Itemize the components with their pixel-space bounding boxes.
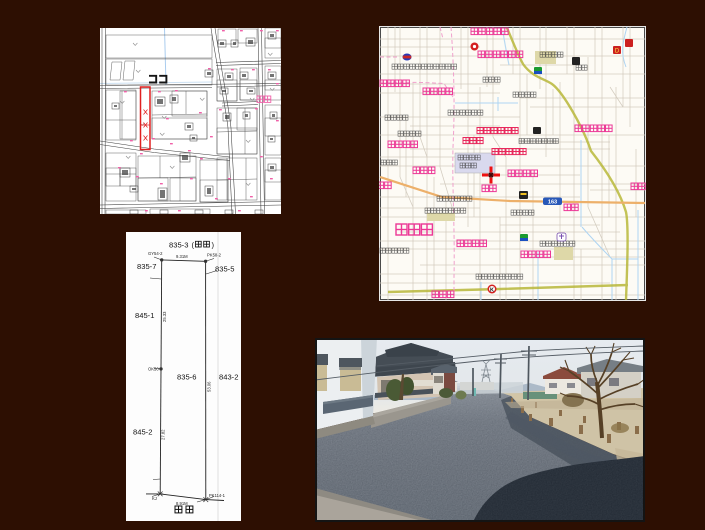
svg-text:GY54-2: GY54-2 (148, 251, 163, 256)
svg-text:PK114-1: PK114-1 (209, 493, 226, 498)
svg-text:KJ: KJ (152, 496, 157, 501)
svg-text:D: D (615, 49, 620, 55)
svg-text:835-7: 835-7 (137, 262, 156, 271)
svg-text:845-1: 845-1 (135, 311, 154, 320)
svg-text:25.33: 25.33 (162, 311, 167, 322)
svg-text:835-6: 835-6 (177, 373, 196, 382)
svg-text:PK58-2: PK58-2 (207, 253, 222, 258)
svg-text:K: K (490, 288, 494, 294)
svg-text:835-3: 835-3 (169, 241, 188, 250)
svg-text:9.31M: 9.31M (176, 254, 188, 259)
svg-text:27.82: 27.82 (161, 429, 166, 440)
svg-text:8.91M: 8.91M (176, 501, 188, 506)
svg-text:163: 163 (548, 200, 557, 206)
svg-text:845-2: 845-2 (133, 428, 152, 437)
svg-text:835-5: 835-5 (215, 265, 234, 274)
svg-text:OK50: OK50 (148, 367, 159, 372)
svg-text:53.06: 53.06 (207, 381, 212, 392)
svg-text:843-2: 843-2 (219, 373, 238, 382)
